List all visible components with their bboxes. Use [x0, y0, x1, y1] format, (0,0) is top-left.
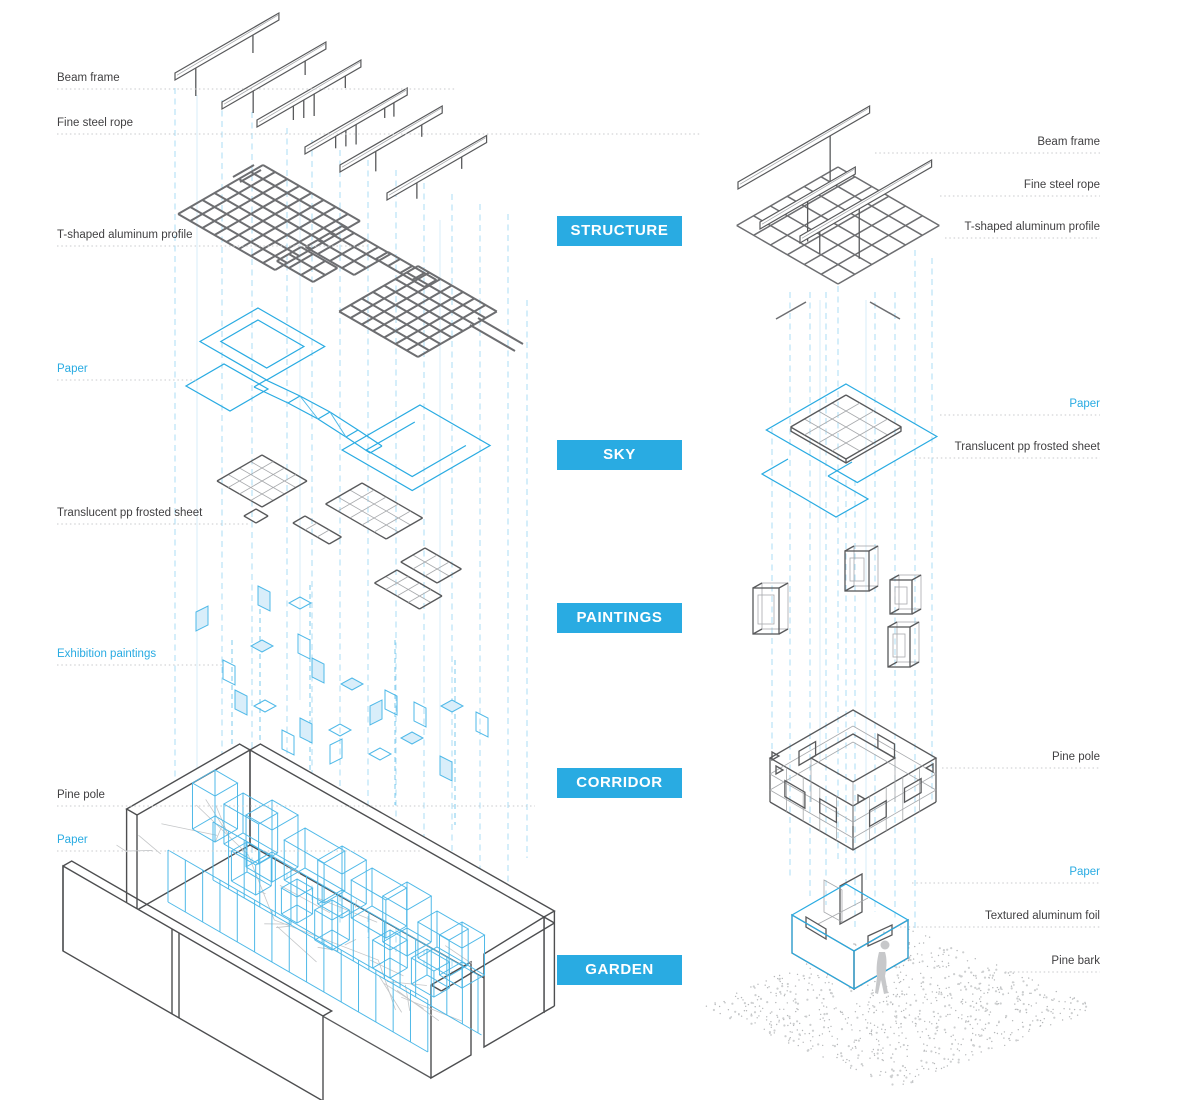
section-tag-corridor: CORRIDOR: [557, 768, 682, 798]
diagram-drawing: [0, 0, 1203, 1100]
left-label-pine-pole: Pine pole: [57, 789, 105, 802]
right-label-textured-aluminum-foil: Textured aluminum foil: [985, 910, 1100, 923]
right-corridor-ring: [770, 710, 936, 850]
section-tag-garden: GARDEN: [557, 955, 682, 985]
right-painting-boxes: [753, 546, 921, 667]
left-label-beam-frame: Beam frame: [57, 72, 120, 85]
right-label-fine-steel-rope: Fine steel rope: [1024, 179, 1100, 192]
left-label-t-shaped-aluminum-profile: T-shaped aluminum profile: [57, 229, 193, 242]
right-label-t-shaped-aluminum-profile: T-shaped aluminum profile: [964, 221, 1100, 234]
right-label-translucent-pp-frosted-sheet: Translucent pp frosted sheet: [955, 441, 1100, 454]
left-label-paper: Paper: [57, 834, 88, 847]
right-label-paper: Paper: [1069, 398, 1100, 411]
right-garden-room: [792, 874, 908, 989]
right-label-pine-pole: Pine pole: [1052, 751, 1100, 764]
left-label-translucent-pp-frosted-sheet: Translucent pp frosted sheet: [57, 507, 202, 520]
right-label-beam-frame: Beam frame: [1037, 136, 1100, 149]
left-beam-frame-layer: [175, 13, 487, 200]
left-label-fine-steel-rope: Fine steel rope: [57, 117, 133, 130]
section-tag-sky: SKY: [557, 440, 682, 470]
left-paper-sheet: [186, 308, 490, 491]
left-garden-room: [0, 0, 554, 1100]
right-label-pine-bark: Pine bark: [1051, 955, 1100, 968]
left-frosted-sheets: [217, 455, 461, 609]
section-tag-paintings: PAINTINGS: [557, 603, 682, 633]
left-label-paper: Paper: [57, 363, 88, 376]
section-tag-structure: STRUCTURE: [557, 216, 682, 246]
exploded-axonometric-diagram: STRUCTURESKYPAINTINGSCORRIDORGARDEN Beam…: [0, 0, 1203, 1100]
right-label-paper: Paper: [1069, 866, 1100, 879]
left-label-exhibition-paintings: Exhibition paintings: [57, 648, 156, 661]
right-paper-sheet: [762, 384, 937, 517]
left-t-profile-grid: [178, 165, 523, 357]
